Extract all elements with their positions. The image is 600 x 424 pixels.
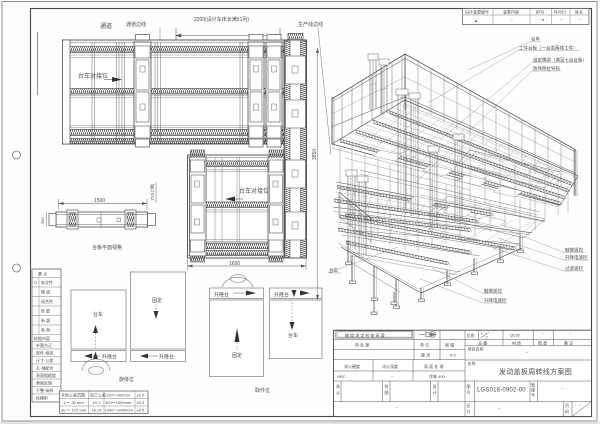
svg-text:分: 分 [467, 408, 471, 414]
svg-text:涂装 400: 涂装 400 [429, 373, 446, 379]
svg-text:2200(设计车体长满51列): 2200(设计车体长满51列) [194, 16, 249, 23]
svg-text:1500: 1500 [94, 198, 105, 204]
svg-text:项目名称: 项目名称 [468, 346, 484, 352]
svg-text:未标公差范围: 未标公差范围 [61, 392, 85, 398]
svg-text:要 点: 要 点 [38, 271, 47, 277]
svg-text:图 幅: 图 幅 [445, 342, 454, 348]
svg-text:1 ～ 30 mm: 1 ～ 30 mm [63, 400, 84, 405]
svg-text:台车: 台车 [93, 311, 103, 318]
svg-text:担当: 担当 [536, 9, 544, 15]
svg-text:・: ・ [559, 17, 563, 22]
svg-text:淬火硬度: 淬火硬度 [344, 363, 360, 369]
svg-text:・: ・ [568, 332, 572, 337]
svg-text:・: ・ [578, 17, 582, 22]
svg-text:品 番: 品 番 [478, 340, 487, 346]
svg-text:认: 认 [336, 389, 340, 395]
svg-text:LGS018-0902-00: LGS018-0902-00 [477, 388, 526, 394]
svg-text:组合性: 组合性 [41, 298, 53, 304]
svg-text:热 处 理: 热 处 理 [355, 342, 369, 348]
svg-text:3850: 3850 [312, 149, 318, 160]
svg-text:1000～2000mm: 1000～2000mm [105, 408, 134, 413]
svg-text:材 质: 材 质 [512, 340, 521, 346]
svg-text:取件位: 取件位 [255, 387, 270, 394]
svg-text:・: ・ [525, 350, 529, 355]
svg-text:部件·组装: 部件·组装 [36, 350, 53, 356]
svg-text:性 能: 性 能 [41, 308, 50, 314]
svg-text:精 度 测 定 检 查 表 要: 精 度 测 定 检 查 表 要 [345, 332, 385, 338]
svg-text:A 3: A 3 [450, 353, 457, 358]
svg-text:Q235: Q235 [510, 333, 521, 338]
svg-text:图: 图 [385, 389, 389, 395]
svg-text:号: 号 [467, 389, 471, 395]
svg-text:固定: 固定 [152, 297, 162, 304]
svg-text:±0.2: ±0.2 [137, 393, 146, 398]
svg-text:固定: 固定 [232, 352, 242, 359]
svg-text:计: 计 [433, 389, 437, 395]
svg-text:▲: ▲ [474, 18, 478, 23]
svg-text:表面处理: 表面处理 [36, 380, 52, 386]
svg-text:±0.15: ±0.15 [92, 408, 103, 413]
svg-text:检: 检 [385, 383, 389, 389]
svg-text:台车对接位: 台车对接位 [239, 187, 269, 195]
svg-text:350: 350 [40, 217, 45, 224]
svg-text:升降台: 升降台 [214, 292, 229, 299]
svg-text:・♦: ・♦ [538, 17, 544, 22]
svg-text:升降台: 升降台 [102, 354, 117, 361]
svg-text:页: 页 [565, 403, 569, 408]
svg-text:±0.5: ±0.5 [137, 408, 146, 413]
svg-text:毫 米: 毫 米 [421, 352, 430, 358]
svg-text:・: ・ [484, 332, 488, 337]
svg-text:・: ・ [510, 17, 514, 22]
svg-text:数 量: 数 量 [538, 340, 547, 346]
svg-text:变更内容: 变更内容 [503, 9, 519, 15]
svg-text:・: ・ [560, 386, 564, 391]
svg-text:检图内容: 检图内容 [34, 335, 50, 341]
svg-text:孔·轴配合: 孔·轴配合 [36, 365, 53, 371]
svg-text:设计变更图号: 设计变更图号 [465, 9, 489, 15]
svg-text:1650: 1650 [229, 261, 240, 267]
svg-text:设: 设 [433, 383, 437, 389]
svg-text:图: 图 [467, 383, 471, 389]
svg-text:生产线边线: 生产线边线 [298, 21, 323, 28]
svg-text:台车对接位: 台车对接位 [78, 72, 108, 80]
svg-text:通道: 通道 [100, 22, 112, 30]
svg-text:安全性: 安全性 [41, 279, 53, 285]
svg-text:新 颖: 新 颖 [41, 317, 50, 323]
svg-text:外围方正: 外围方正 [36, 342, 52, 348]
svg-text:表面粗糙度: 表面粗糙度 [36, 372, 56, 378]
svg-text:30 ～ 120 mm: 30 ～ 120 mm [61, 408, 87, 413]
svg-text:承: 承 [336, 383, 340, 389]
svg-text:区: 区 [467, 403, 471, 408]
svg-text:±0.3: ±0.3 [137, 400, 146, 405]
svg-text:・: ・ [395, 405, 399, 410]
svg-text:120～400mm: 120～400mm [106, 393, 131, 398]
svg-text:加工公差: 加工公差 [90, 392, 106, 398]
svg-text:台板平面视格: 台板平面视格 [92, 244, 122, 251]
svg-text:旋体位: 旋体位 [119, 376, 134, 383]
svg-text:升降台: 升降台 [159, 354, 174, 361]
svg-text:干整·抹样: 干整·抹样 [36, 387, 53, 393]
svg-text:表 面 处 理: 表 面 处 理 [424, 363, 443, 369]
svg-text:400～1000mm: 400～1000mm [105, 400, 132, 405]
svg-text:通道边线: 通道边线 [126, 21, 146, 28]
svg-text:・: ・ [390, 374, 394, 379]
svg-text:号: 号 [531, 392, 535, 398]
svg-text:±0.1: ±0.1 [93, 400, 102, 405]
svg-text:名称: 名称 [468, 360, 476, 366]
svg-text:标模柜: 标模柜 [36, 395, 48, 401]
svg-text:比例: 比例 [467, 332, 475, 338]
svg-text:姓名: 姓名 [575, 9, 583, 15]
svg-text:单 位: 单 位 [420, 342, 429, 348]
svg-text:升降台: 升降台 [274, 292, 289, 299]
svg-text:其 他: 其 他 [41, 327, 50, 333]
svg-text:发动盖板周转线方案图: 发动盖板周转线方案图 [499, 367, 572, 376]
svg-text:・: ・ [541, 332, 545, 337]
svg-text:备 注: 备 注 [564, 340, 573, 346]
svg-text:HRC: HRC [337, 374, 346, 379]
svg-text:・: ・ [497, 406, 501, 411]
svg-text:15(0上模): 15(0上模) [149, 183, 155, 201]
svg-text:精 度: 精 度 [41, 289, 50, 295]
svg-text:尺寸·公差: 尺寸·公差 [36, 357, 53, 363]
svg-text:・: ・ [578, 402, 582, 407]
svg-text:码: 码 [565, 408, 569, 414]
svg-text:淬火深度: 淬火深度 [382, 363, 398, 369]
svg-text:台车: 台车 [288, 332, 298, 339]
svg-text:年月日: 年月日 [554, 9, 566, 15]
